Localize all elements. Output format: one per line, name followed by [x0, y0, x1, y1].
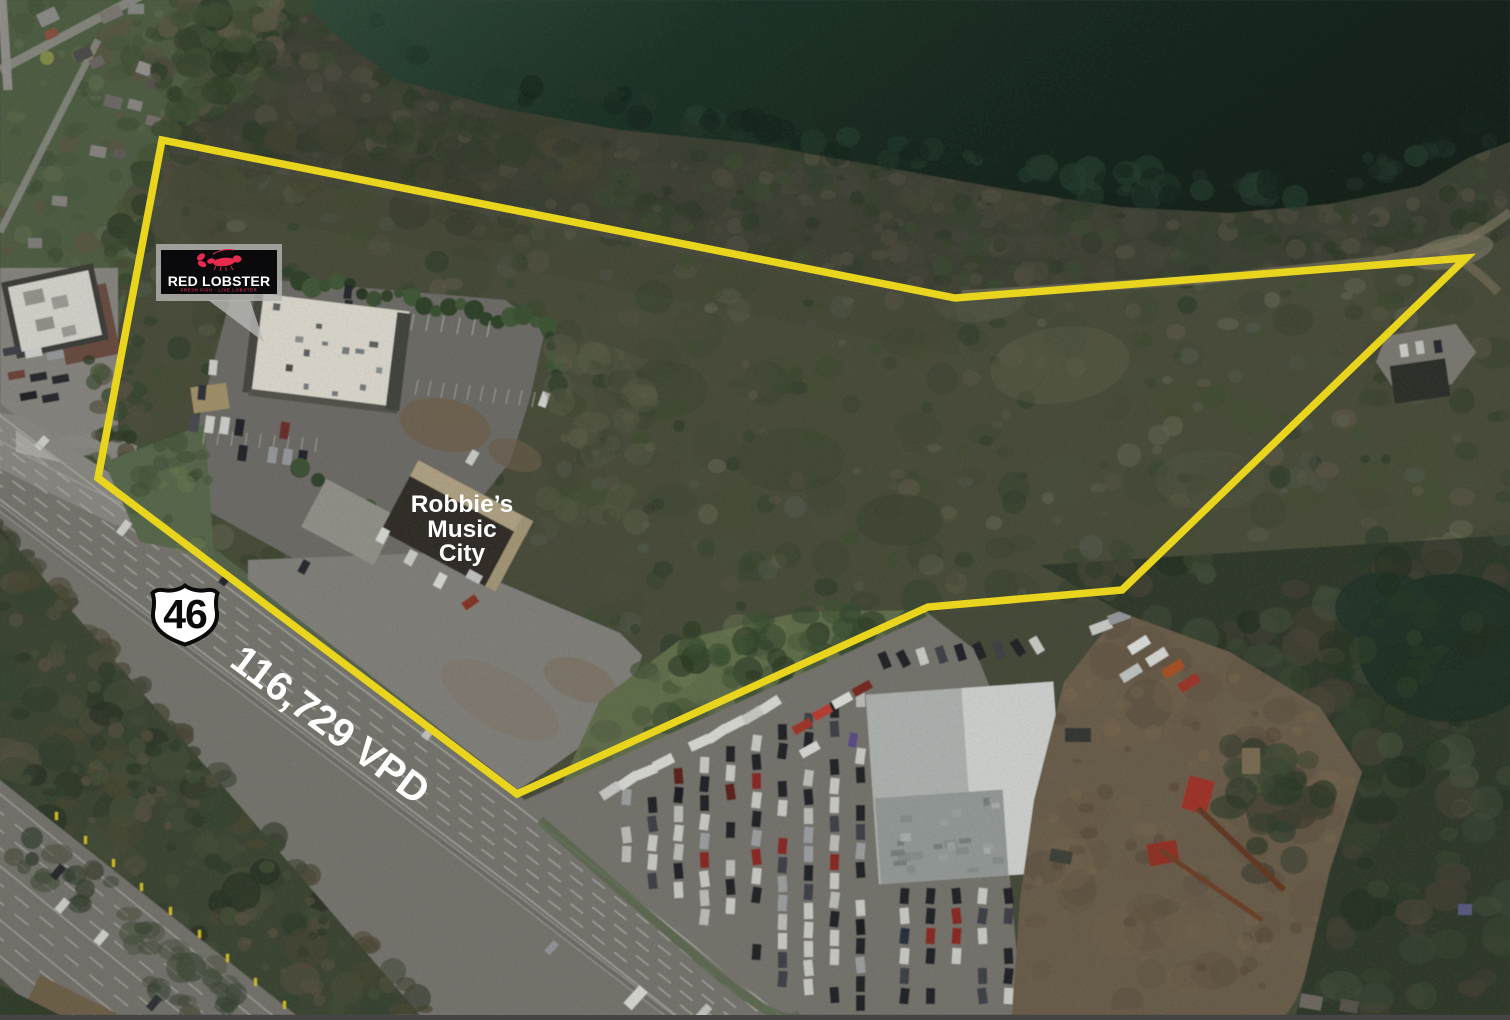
svg-text:Music: Music — [427, 516, 496, 543]
svg-text:City: City — [439, 540, 486, 567]
svg-text:46: 46 — [163, 591, 207, 637]
svg-text:FRESH FISH · LIVE LOBSTER: FRESH FISH · LIVE LOBSTER — [181, 288, 258, 293]
svg-text:Robbie’s: Robbie’s — [411, 491, 514, 518]
